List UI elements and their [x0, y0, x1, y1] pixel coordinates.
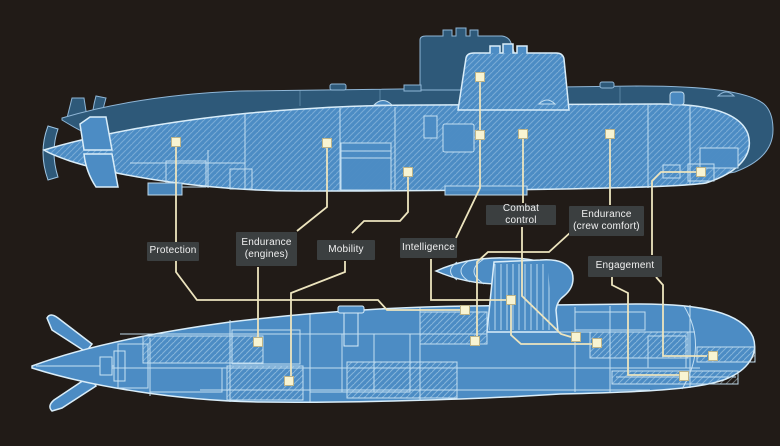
callout-text: (engines) — [245, 249, 289, 262]
marker-engagement-top — [697, 168, 706, 177]
bottom-submarine — [32, 258, 755, 411]
callout-label-intelligence: Intelligence — [400, 238, 457, 258]
submarine-comparison-diagram: Protection Endurance (engines) Mobility … — [0, 0, 780, 446]
callout-text: Protection — [149, 245, 196, 258]
marker-combat-control-top — [519, 130, 528, 139]
marker-protection-top — [172, 138, 181, 147]
callout-text: (crew comfort) — [573, 221, 640, 234]
callout-text: Endurance — [581, 209, 631, 222]
marker-endurance-engines-top — [323, 139, 332, 148]
callout-label-engagement: Engagement — [588, 256, 662, 277]
marker-intelligence-sail-top — [476, 73, 485, 82]
marker-mobility-bottom — [285, 377, 294, 386]
marker-engagement-bottom-2 — [680, 372, 689, 381]
callout-label-endurance-crew-comfort: Endurance (crew comfort) — [569, 206, 644, 236]
marker-endurance-crew-top — [606, 130, 615, 139]
marker-intelligence-bottom — [593, 339, 602, 348]
marker-intelligence-hull-top — [476, 131, 485, 140]
marker-combat-control-bottom — [572, 333, 581, 342]
callout-text: Combat control — [488, 203, 554, 228]
marker-endurance-crew-bottom — [471, 337, 480, 346]
marker-engagement-bottom-1 — [709, 352, 718, 361]
callout-label-combat-control: Combat control — [486, 205, 556, 225]
callout-text: Mobility — [328, 244, 364, 257]
callout-text: Endurance — [241, 237, 291, 250]
marker-intelligence-sail-bottom — [507, 296, 516, 305]
marker-mobility-top — [404, 168, 413, 177]
callout-label-endurance-engines: Endurance (engines) — [236, 232, 297, 266]
callout-text: Engagement — [596, 260, 655, 273]
callout-label-mobility: Mobility — [317, 240, 375, 260]
marker-protection-bottom — [461, 306, 470, 315]
callout-label-protection: Protection — [147, 242, 199, 261]
marker-endurance-engines-bottom — [254, 338, 263, 347]
callout-text: Intelligence — [402, 242, 455, 255]
diagram-canvas — [0, 0, 780, 446]
